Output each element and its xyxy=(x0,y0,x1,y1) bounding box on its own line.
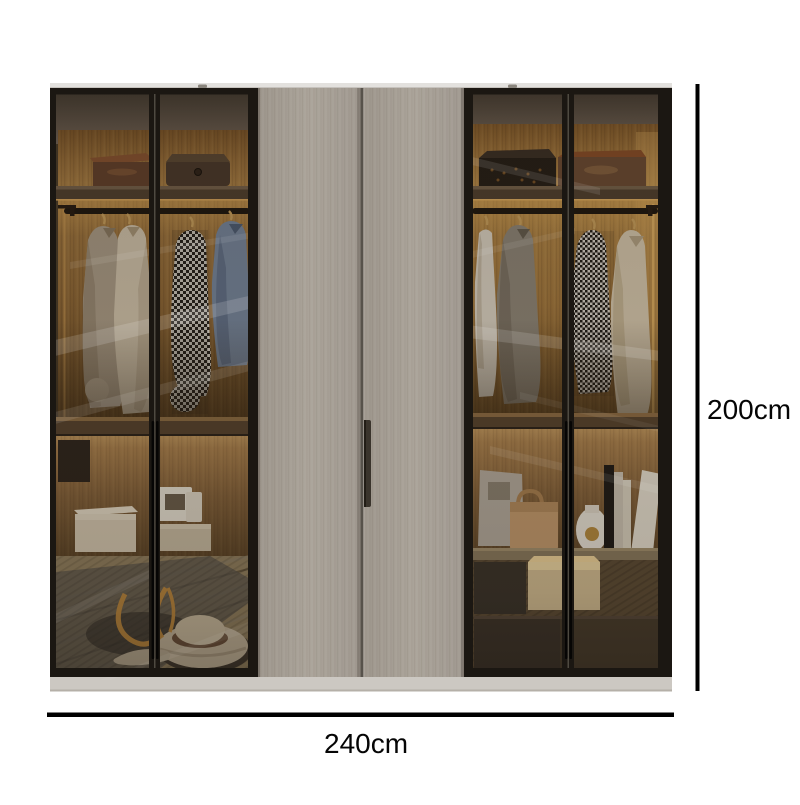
svg-text:200cm: 200cm xyxy=(707,394,791,425)
svg-text:240cm: 240cm xyxy=(324,728,408,759)
